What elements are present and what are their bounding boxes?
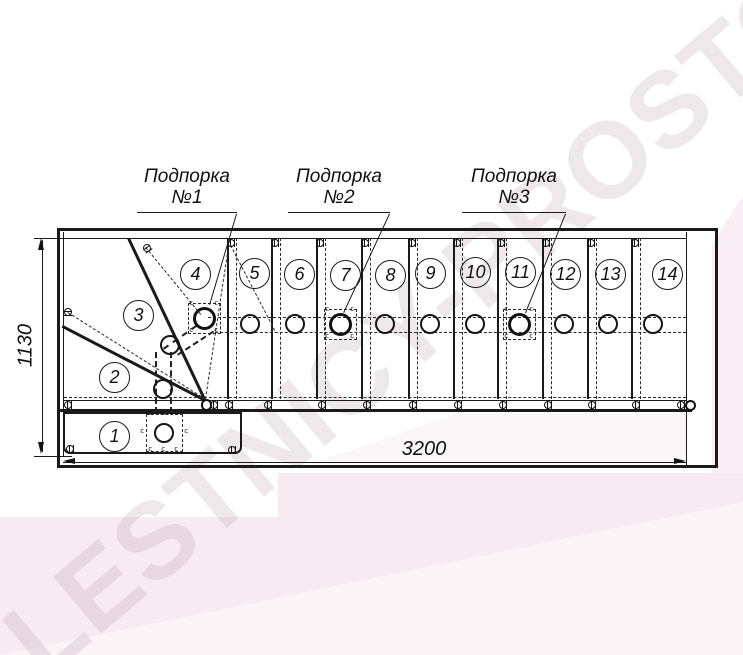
tread-hidden-line [417, 238, 418, 399]
step-number-label: 9 [425, 263, 435, 284]
screw-icon [409, 401, 417, 409]
screw-icon [318, 401, 326, 409]
baluster-circle [375, 314, 395, 334]
screw-icon [588, 401, 596, 409]
screw-icon [264, 401, 272, 409]
tread-edge-line [408, 238, 410, 399]
step-number-14: 14 [652, 259, 683, 290]
leader-shelf [462, 212, 566, 213]
baluster-circle [285, 314, 305, 334]
tread-hidden-line [640, 238, 641, 399]
screw-icon [542, 239, 550, 247]
step-number-label: 13 [600, 264, 620, 285]
dimension-line-horizontal [63, 462, 686, 463]
step-number-10: 10 [460, 257, 491, 288]
step-number-13: 13 [595, 259, 626, 290]
step-number-label: 2 [109, 367, 119, 388]
dimension-height-value: 1130 [15, 301, 38, 391]
step-number-5: 5 [239, 258, 270, 289]
support-label-title: Подпорка [434, 166, 594, 187]
tread-hidden-line [551, 238, 552, 399]
leader-shelf [288, 212, 390, 213]
baluster-circle [643, 314, 663, 334]
support-1-label: Подпорка №1 [107, 166, 267, 208]
step-number-8: 8 [375, 260, 406, 291]
tread-edge-line [453, 238, 455, 399]
support-label-number: №1 [107, 187, 267, 208]
screw-icon [408, 239, 416, 247]
screw-icon [631, 239, 639, 247]
step-number-4: 4 [180, 259, 211, 290]
inner-right-line [686, 232, 687, 465]
screw-icon [316, 239, 324, 247]
screw-icon [361, 239, 369, 247]
tread-edge-line [271, 238, 273, 399]
step-number-12: 12 [550, 259, 581, 290]
step-number-label: 1 [109, 426, 119, 447]
leader-shelf [137, 212, 237, 213]
step-number-label: 5 [249, 263, 259, 284]
screw-icon [64, 308, 72, 316]
staircase-plan-drawing: LESTNICY-PROSTO.RU ccc c [0, 0, 743, 655]
support-3-label: Подпорка №3 [434, 166, 594, 208]
screw-icon [64, 401, 72, 409]
dimension-arrow-up [38, 238, 44, 250]
support-2-label: Подпорка №2 [259, 166, 419, 208]
step-number-label: 8 [385, 265, 395, 286]
step-number-11: 11 [505, 257, 536, 288]
tread-edge-line [587, 238, 589, 399]
step-number-3: 3 [123, 300, 154, 331]
baluster-circle [240, 314, 260, 334]
tread-edge-line [227, 238, 229, 399]
screw-icon [453, 239, 461, 247]
extension-line [34, 456, 72, 457]
tread-edge-line [542, 238, 544, 399]
screw-icon [363, 401, 371, 409]
support-label-title: Подпорка [259, 166, 419, 187]
rail-post-circle [160, 335, 180, 355]
baluster-circle [465, 314, 485, 334]
baluster-circle [554, 314, 574, 334]
tread-edge-line [361, 238, 363, 399]
support-label-number: №2 [259, 187, 419, 208]
dimension-arrow-left [63, 458, 75, 464]
support-label-title: Подпорка [107, 166, 267, 187]
screw-icon [225, 401, 233, 409]
screw-icon [499, 401, 507, 409]
support-3-circle [508, 313, 531, 336]
tread-edge-line [316, 238, 318, 399]
tread-hidden-line [236, 238, 237, 399]
screw-icon [544, 401, 552, 409]
step-number-label: 11 [511, 262, 530, 283]
screw-icon [632, 401, 640, 409]
step-number-2: 2 [99, 362, 130, 393]
baluster-circle [598, 314, 618, 334]
support-label-number: №3 [434, 187, 594, 208]
dimension-arrow-down [38, 442, 44, 454]
rail-hidden-line [215, 332, 686, 333]
step-number-label: 12 [555, 264, 575, 285]
step-number-label: 3 [133, 305, 143, 326]
dimension-arrow-right [674, 458, 686, 464]
screw-icon [228, 446, 236, 454]
tread-hidden-line [280, 238, 281, 399]
step-number-label: 7 [340, 265, 350, 286]
stringer-end-cap [685, 400, 696, 411]
tread-edge-line [497, 238, 499, 399]
baluster-circle [420, 314, 440, 334]
step-number-9: 9 [415, 258, 446, 289]
tread-hidden-line [596, 238, 597, 399]
rail-post-circle [153, 379, 173, 399]
step-number-label: 6 [294, 264, 304, 285]
step-number-6: 6 [284, 259, 315, 290]
step-number-label: 4 [190, 264, 200, 285]
support-2-circle [329, 313, 352, 336]
screw-icon [587, 239, 595, 247]
support-1-circle [193, 307, 216, 330]
screw-icon [497, 239, 505, 247]
screw-icon [271, 239, 279, 247]
dimension-line-vertical [42, 240, 43, 452]
screw-icon [66, 445, 74, 453]
tread-edge-line [631, 238, 633, 399]
dimension-length-value: 3200 [374, 438, 474, 461]
step-number-label: 10 [465, 262, 485, 283]
screw-icon [677, 401, 685, 409]
extension-line [34, 238, 58, 239]
screw-icon [210, 401, 218, 409]
tread-hidden-line [370, 238, 371, 399]
newel-post-circle [154, 423, 174, 443]
screw-icon [454, 401, 462, 409]
step-number-label: 14 [657, 264, 677, 285]
step-number-1: 1 [99, 421, 130, 452]
